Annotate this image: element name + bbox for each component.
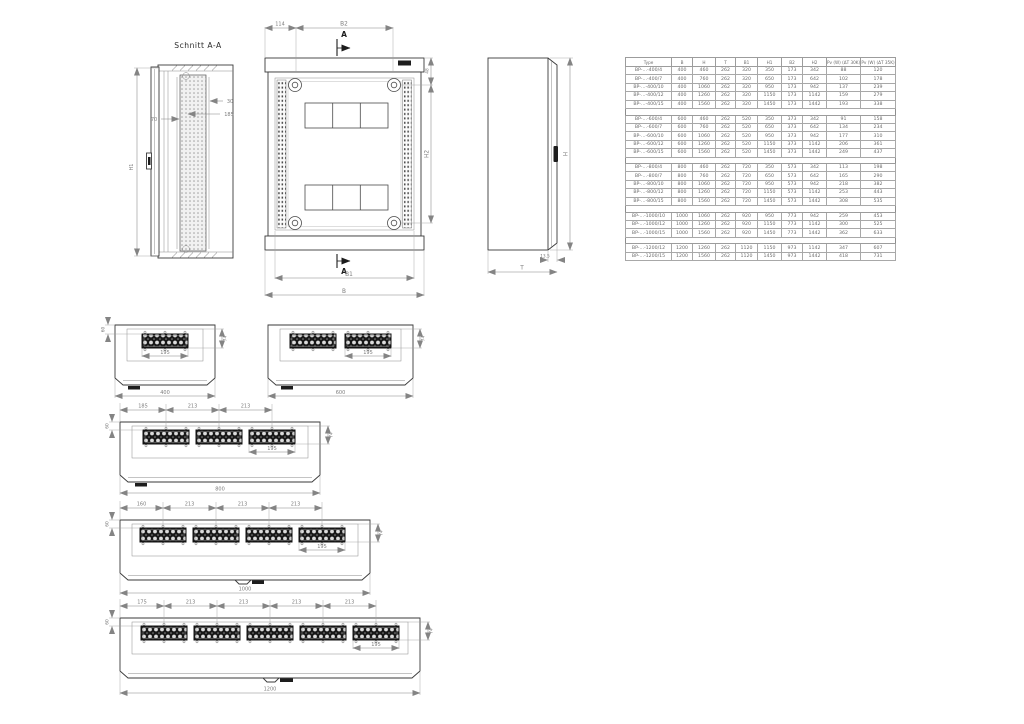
tv1200-dim-total: 1200: [264, 687, 277, 693]
front-cut-mark-top: A: [337, 30, 350, 56]
spec-cell: 320: [736, 92, 758, 100]
spec-cell: 173: [782, 100, 803, 108]
spec-cell: 1200: [672, 252, 693, 260]
spec-cell: 650: [758, 75, 782, 83]
spec-cell: 361: [861, 140, 896, 148]
spec-cell: 262: [716, 221, 736, 229]
spec-cell: 262: [716, 92, 736, 100]
top-view-1200: 175 213 213 213 213 195 60 74 1200: [105, 596, 445, 700]
tv800-dim-74: 74: [329, 432, 335, 438]
tv600-dim-195: 195: [363, 350, 373, 356]
spec-cell: 600: [672, 123, 693, 131]
spec-cell: 1442: [803, 197, 827, 205]
spec-row: BP-...-600/10600106026252095037394217731…: [626, 132, 896, 140]
side-door-handle: [554, 146, 559, 162]
spec-row: BP-...-600/460046026252035037334291158: [626, 115, 896, 123]
spec-cell: 1560: [693, 229, 716, 237]
spec-cell: 720: [736, 197, 758, 205]
spec-cell: 1142: [803, 140, 827, 148]
spec-row: BP-...-600/15600156026252014503731442249…: [626, 149, 896, 157]
spec-cell: 373: [782, 132, 803, 140]
tv600-flange-module-1: [290, 331, 336, 351]
spec-cell: 633: [861, 229, 896, 237]
section-dim-185: 185: [224, 112, 234, 118]
spec-cell: 520: [736, 115, 758, 123]
spec-cell: 262: [716, 140, 736, 148]
spec-row: BP-...-1000/1210001260262920115077311423…: [626, 221, 896, 229]
tv1000-dim-total: 1000: [239, 587, 252, 593]
spec-cell: 535: [861, 197, 896, 205]
spec-cell: 400: [672, 100, 693, 108]
spec-cell: 942: [803, 212, 827, 220]
spec-row: BP-...-800/10800106026272095057394221838…: [626, 180, 896, 188]
spec-cell: BP-...-400/12: [626, 92, 672, 100]
spec-cell: 950: [758, 132, 782, 140]
tv1200-pitch-1: 213: [186, 600, 196, 606]
spec-cell: 137: [827, 83, 861, 91]
spec-cell: 310: [861, 132, 896, 140]
spec-cell: 262: [716, 115, 736, 123]
spec-cell: 443: [861, 189, 896, 197]
spec-cell: BP-...-600/10: [626, 132, 672, 140]
spec-cell: 720: [736, 172, 758, 180]
spec-table-head: TypeBHTB1H1B2H2Pv (W) (ΔT 30K)Pv (W) (ΔT…: [626, 58, 896, 67]
spec-header-cell: H2: [803, 58, 827, 67]
spec-cell: 600: [672, 140, 693, 148]
spec-cell: 920: [736, 212, 758, 220]
spec-cell: 520: [736, 123, 758, 131]
side-dim-t: T: [519, 266, 524, 272]
spec-cell: 290: [861, 172, 896, 180]
spec-cell: 1450: [758, 149, 782, 157]
spec-cell: 400: [672, 67, 693, 75]
tv800-pitch-2: 213: [241, 404, 251, 410]
spec-cell: 320: [736, 100, 758, 108]
spec-row: BP-...-400/440046026232035017334288120: [626, 67, 896, 75]
spec-cell: 573: [782, 189, 803, 197]
tv400-dim-total: 400: [160, 390, 170, 396]
spec-cell: 259: [827, 212, 861, 220]
spec-cell: 1260: [693, 244, 716, 252]
tv1000-pitch-2: 213: [238, 502, 248, 508]
spec-row: BP-...-400/7400760262320650173642102178: [626, 75, 896, 83]
spec-cell: 1260: [693, 189, 716, 197]
spec-cell: 262: [716, 123, 736, 131]
spec-cell: BP-...-1000/15: [626, 229, 672, 237]
tv400-handle: [128, 386, 140, 390]
spec-cell: 600: [672, 149, 693, 157]
section-dim-h1: H1: [129, 164, 135, 171]
spec-cell: BP-...-1200/12: [626, 244, 672, 252]
front-dim-b1: B1: [345, 272, 353, 278]
spec-cell: 262: [716, 189, 736, 197]
spec-cell: 373: [782, 149, 803, 157]
spec-cell: 942: [803, 83, 827, 91]
spec-cell: 460: [693, 115, 716, 123]
spec-cell: 1000: [672, 221, 693, 229]
spec-cell: 520: [736, 140, 758, 148]
tv600-handle: [281, 386, 293, 390]
spec-cell: 650: [758, 172, 782, 180]
spec-cell: 942: [803, 132, 827, 140]
tv1000-pitch-0: 160: [137, 502, 147, 508]
spec-cell: 262: [716, 212, 736, 220]
spec-row: BP-...-800/7800760262720650573642165290: [626, 172, 896, 180]
spec-cell: 1142: [803, 221, 827, 229]
spec-cell: 320: [736, 75, 758, 83]
spec-row: BP-...-1000/1010001060262920950773942259…: [626, 212, 896, 220]
tv1200-pitch-4: 213: [345, 600, 355, 606]
spec-cell: 253: [827, 189, 861, 197]
spec-cell: 234: [861, 123, 896, 131]
spec-row-separator: [626, 108, 896, 115]
drawing-canvas: Schnitt A-A H1 70 30 185: [0, 0, 1024, 724]
spec-cell: 239: [861, 83, 896, 91]
spec-cell: 1142: [803, 244, 827, 252]
spec-header-cell: H: [693, 58, 716, 67]
spec-header-cell: Pv (W) (ΔT 35K): [861, 58, 896, 67]
spec-cell: 1560: [693, 100, 716, 108]
spec-cell: 460: [693, 164, 716, 172]
spec-cell: 1000: [672, 229, 693, 237]
spec-cell: 178: [861, 75, 896, 83]
spec-cell: 206: [827, 140, 861, 148]
spec-row: BP-...-600/7600760262520650373642134234: [626, 123, 896, 131]
spec-cell: BP-...-400/15: [626, 100, 672, 108]
top-view-1000: 160 213 213 213 195 60 74 1000: [105, 498, 395, 600]
spec-cell: 262: [716, 149, 736, 157]
tv400-dim-74: 74: [223, 336, 229, 342]
spec-cell: 173: [782, 75, 803, 83]
spec-header-cell: H1: [758, 58, 782, 67]
spec-cell: 950: [758, 212, 782, 220]
spec-cell: 437: [861, 149, 896, 157]
spec-cell: 262: [716, 83, 736, 91]
spec-cell: 520: [736, 132, 758, 140]
spec-cell: 350: [758, 164, 782, 172]
spec-cell: 1060: [693, 212, 716, 220]
tv800-flange-modules: [143, 427, 295, 447]
spec-cell: 300: [827, 221, 861, 229]
spec-cell: 134: [827, 123, 861, 131]
spec-cell: 1150: [758, 140, 782, 148]
section-dim-70: 70: [151, 117, 157, 123]
spec-cell: 1120: [736, 252, 758, 260]
spec-cell: 159: [827, 92, 861, 100]
spec-cell: 760: [693, 123, 716, 131]
front-module-row-2: [305, 185, 388, 210]
spec-cell: 350: [758, 115, 782, 123]
spec-cell: 1560: [693, 149, 716, 157]
spec-cell: 1450: [758, 100, 782, 108]
spec-cell: 198: [861, 164, 896, 172]
spec-cell: 773: [782, 229, 803, 237]
spec-row: BP-...-400/15400156026232014501731442193…: [626, 100, 896, 108]
spec-cell: 193: [827, 100, 861, 108]
spec-header-cell: B2: [782, 58, 803, 67]
spec-header-row: TypeBHTB1H1B2H2Pv (W) (ΔT 30K)Pv (W) (ΔT…: [626, 58, 896, 67]
front-dim-h2: H2: [425, 150, 431, 158]
tv800-handle: [135, 483, 147, 487]
tv1200-flange-modules: [141, 623, 399, 643]
front-dim-b2: B2: [340, 22, 348, 28]
spec-header-cell: B: [672, 58, 693, 67]
spec-row: BP-...-1200/1512001560262112014509731442…: [626, 252, 896, 260]
tv800-dim-60: 60: [105, 423, 111, 429]
spec-table-body: BP-...-400/440046026232035017334288120BP…: [626, 67, 896, 261]
spec-cell: 1450: [758, 252, 782, 260]
spec-cell: 342: [803, 67, 827, 75]
tv1200-pitch-0: 175: [137, 600, 147, 606]
spec-row: BP-...-600/12600126026252011503731142206…: [626, 140, 896, 148]
spec-cell: BP-...-1000/12: [626, 221, 672, 229]
spec-cell: 573: [782, 164, 803, 172]
section-door: [151, 67, 159, 256]
spec-cell: 1150: [758, 92, 782, 100]
spec-cell: 1060: [693, 83, 716, 91]
spec-cell: 1442: [803, 100, 827, 108]
tv600-dim-74: 74: [421, 336, 427, 342]
spec-cell: 262: [716, 132, 736, 140]
spec-cell: 177: [827, 132, 861, 140]
spec-cell: 1142: [803, 92, 827, 100]
spec-cell: BP-...-800/7: [626, 172, 672, 180]
section-dim-30: 30: [227, 99, 233, 105]
section-view-title: Schnitt A-A: [148, 41, 248, 50]
front-label-plate: [398, 61, 411, 66]
spec-cell: 650: [758, 123, 782, 131]
spec-cell: 362: [827, 229, 861, 237]
spec-cell: 373: [782, 115, 803, 123]
spec-cell: 262: [716, 100, 736, 108]
side-body: [488, 58, 548, 250]
spec-cell: 1150: [758, 244, 782, 252]
spec-cell: 262: [716, 197, 736, 205]
front-body: [268, 72, 421, 236]
spec-cell: 800: [672, 180, 693, 188]
front-module-row-1: [305, 103, 388, 128]
side-view: H 13.5 T: [480, 50, 580, 282]
spec-cell: BP-...-800/4: [626, 164, 672, 172]
spec-cell: 773: [782, 221, 803, 229]
spec-cell: 342: [803, 164, 827, 172]
spec-cell: BP-...-800/15: [626, 197, 672, 205]
spec-cell: 1442: [803, 149, 827, 157]
spec-cell: 373: [782, 140, 803, 148]
spec-cell: 158: [861, 115, 896, 123]
spec-cell: 400: [672, 92, 693, 100]
tv1200-notch: [263, 678, 279, 682]
spec-cell: 1450: [758, 229, 782, 237]
spec-cell: BP-...-600/15: [626, 149, 672, 157]
tv400-dim-60: 60: [101, 327, 107, 333]
spec-row: BP-...-800/12800126026272011505731142253…: [626, 189, 896, 197]
spec-cell: 320: [736, 83, 758, 91]
spec-cell: 720: [736, 189, 758, 197]
spec-cell: BP-...-1000/10: [626, 212, 672, 220]
tv1000-notch: [235, 580, 251, 584]
spec-cell: BP-...-400/10: [626, 83, 672, 91]
spec-cell: 173: [782, 92, 803, 100]
side-dim-135: 13.5: [540, 254, 550, 260]
tv1000-pitch-1: 213: [185, 502, 195, 508]
spec-cell: 1060: [693, 180, 716, 188]
spec-cell: 573: [782, 172, 803, 180]
tv600-dim-total: 600: [336, 390, 346, 396]
spec-cell: 1120: [736, 244, 758, 252]
tv1200-dim-195: 195: [371, 642, 381, 648]
spec-cell: 942: [803, 180, 827, 188]
front-view: 114 B2 A A 48 H2 B1 B: [250, 15, 435, 307]
spec-cell: 320: [736, 67, 758, 75]
spec-cell: BP-...-600/4: [626, 115, 672, 123]
spec-row-separator: [626, 157, 896, 164]
spec-cell: 1442: [803, 252, 827, 260]
section-mounting-plate: [180, 75, 206, 251]
tv1000-pitch-3: 213: [291, 502, 301, 508]
spec-cell: 342: [803, 115, 827, 123]
spec-cell: 1150: [758, 189, 782, 197]
spec-cell: 347: [827, 244, 861, 252]
spec-cell: 1060: [693, 132, 716, 140]
spec-cell: BP-...-400/7: [626, 75, 672, 83]
spec-cell: 400: [672, 75, 693, 83]
spec-cell: 1150: [758, 221, 782, 229]
spec-cell: 607: [861, 244, 896, 252]
spec-cell: 1200: [672, 244, 693, 252]
spec-cell: 800: [672, 189, 693, 197]
tv1200-dim-60: 60: [105, 619, 111, 625]
spec-cell: 262: [716, 67, 736, 75]
spec-cell: 165: [827, 172, 861, 180]
spec-cell: 642: [803, 123, 827, 131]
spec-cell: BP-...-600/7: [626, 123, 672, 131]
spec-cell: 642: [803, 75, 827, 83]
spec-cell: 773: [782, 212, 803, 220]
spec-cell: 373: [782, 123, 803, 131]
spec-cell: 520: [736, 149, 758, 157]
spec-cell: 1260: [693, 92, 716, 100]
spec-cell: 920: [736, 229, 758, 237]
front-perf-strip-left: [277, 80, 286, 228]
spec-cell: 600: [672, 115, 693, 123]
tv1200-handle: [280, 679, 293, 683]
spec-cell: 88: [827, 67, 861, 75]
spec-cell: 453: [861, 212, 896, 220]
front-perf-strip-right: [403, 80, 412, 228]
tv600-flange-module-2: [345, 331, 391, 351]
spec-header-cell: Type: [626, 58, 672, 67]
spec-cell: 973: [782, 252, 803, 260]
tv1200-pitch-2: 213: [239, 600, 249, 606]
top-view-600: 195 74 600: [255, 318, 435, 403]
tv1000-dim-195: 195: [317, 544, 327, 550]
spec-cell: 920: [736, 221, 758, 229]
spec-row: BP-...-1200/1212001260262112011509731142…: [626, 244, 896, 252]
spec-cell: 1260: [693, 221, 716, 229]
top-view-400: 195 60 74 400: [100, 318, 235, 403]
spec-row: BP-...-400/10400106026232095017394213723…: [626, 83, 896, 91]
spec-cell: 800: [672, 172, 693, 180]
spec-cell: 120: [861, 67, 896, 75]
spec-cell: 642: [803, 172, 827, 180]
tv1000-handle: [252, 581, 264, 585]
spec-cell: 400: [672, 83, 693, 91]
spec-cell: 262: [716, 172, 736, 180]
spec-cell: 262: [716, 180, 736, 188]
spec-cell: 1560: [693, 252, 716, 260]
tv800-pitch-0: 185: [138, 404, 148, 410]
tv400-dim-195: 195: [160, 350, 170, 356]
spec-cell: 1450: [758, 197, 782, 205]
spec-cell: 382: [861, 180, 896, 188]
spec-cell: 338: [861, 100, 896, 108]
spec-cell: 573: [782, 180, 803, 188]
tv1200-dim-74: 74: [429, 628, 435, 634]
tv1000-dim-74: 74: [379, 530, 385, 536]
spec-cell: 1142: [803, 189, 827, 197]
spec-cell: 1442: [803, 229, 827, 237]
spec-cell: 102: [827, 75, 861, 83]
front-cut-label-top: A: [341, 30, 347, 39]
spec-cell: 113: [827, 164, 861, 172]
tv800-dim-195: 195: [267, 446, 277, 452]
spec-cell: 262: [716, 75, 736, 83]
spec-cell: 460: [693, 67, 716, 75]
side-dim-h: H: [564, 152, 570, 156]
spec-cell: 1260: [693, 140, 716, 148]
spec-cell: 308: [827, 197, 861, 205]
spec-row-separator: [626, 237, 896, 244]
spec-cell: 262: [716, 229, 736, 237]
spec-row: BP-...-400/12400126026232011501731142159…: [626, 92, 896, 100]
front-dim-48: 48: [425, 68, 431, 74]
front-dim-114: 114: [275, 22, 285, 28]
tv1000-dim-60: 60: [105, 521, 111, 527]
spec-cell: 600: [672, 132, 693, 140]
spec-cell: BP-...-600/12: [626, 140, 672, 148]
spec-row-separator: [626, 206, 896, 213]
spec-cell: 418: [827, 252, 861, 260]
spec-cell: 573: [782, 197, 803, 205]
spec-cell: 249: [827, 149, 861, 157]
spec-cell: 91: [827, 115, 861, 123]
spec-cell: BP-...-400/4: [626, 67, 672, 75]
spec-cell: 800: [672, 197, 693, 205]
tv800-dim-total: 800: [215, 487, 225, 493]
spec-cell: 1000: [672, 212, 693, 220]
spec-table-wrap: TypeBHTB1H1B2H2Pv (W) (ΔT 30K)Pv (W) (ΔT…: [625, 57, 895, 261]
spec-cell: BP-...-800/12: [626, 189, 672, 197]
spec-cell: 262: [716, 244, 736, 252]
spec-row: BP-...-800/4800460262720350573342113198: [626, 164, 896, 172]
spec-cell: 973: [782, 244, 803, 252]
top-view-800: 185 213 213 195 60 74 800: [105, 400, 340, 500]
front-bottom-rail: [265, 236, 424, 250]
spec-header-cell: T: [716, 58, 736, 67]
spec-row: BP-...-1000/1510001560262920145077314423…: [626, 229, 896, 237]
spec-row: BP-...-800/15800156026272014505731442308…: [626, 197, 896, 205]
spec-cell: 173: [782, 67, 803, 75]
spec-header-cell: Pv (W) (ΔT 30K): [827, 58, 861, 67]
spec-cell: 218: [827, 180, 861, 188]
spec-cell: 262: [716, 252, 736, 260]
spec-cell: 525: [861, 221, 896, 229]
spec-cell: BP-...-1200/15: [626, 252, 672, 260]
spec-header-cell: B1: [736, 58, 758, 67]
spec-cell: 720: [736, 180, 758, 188]
section-view: H1 70 30 185: [128, 55, 243, 270]
